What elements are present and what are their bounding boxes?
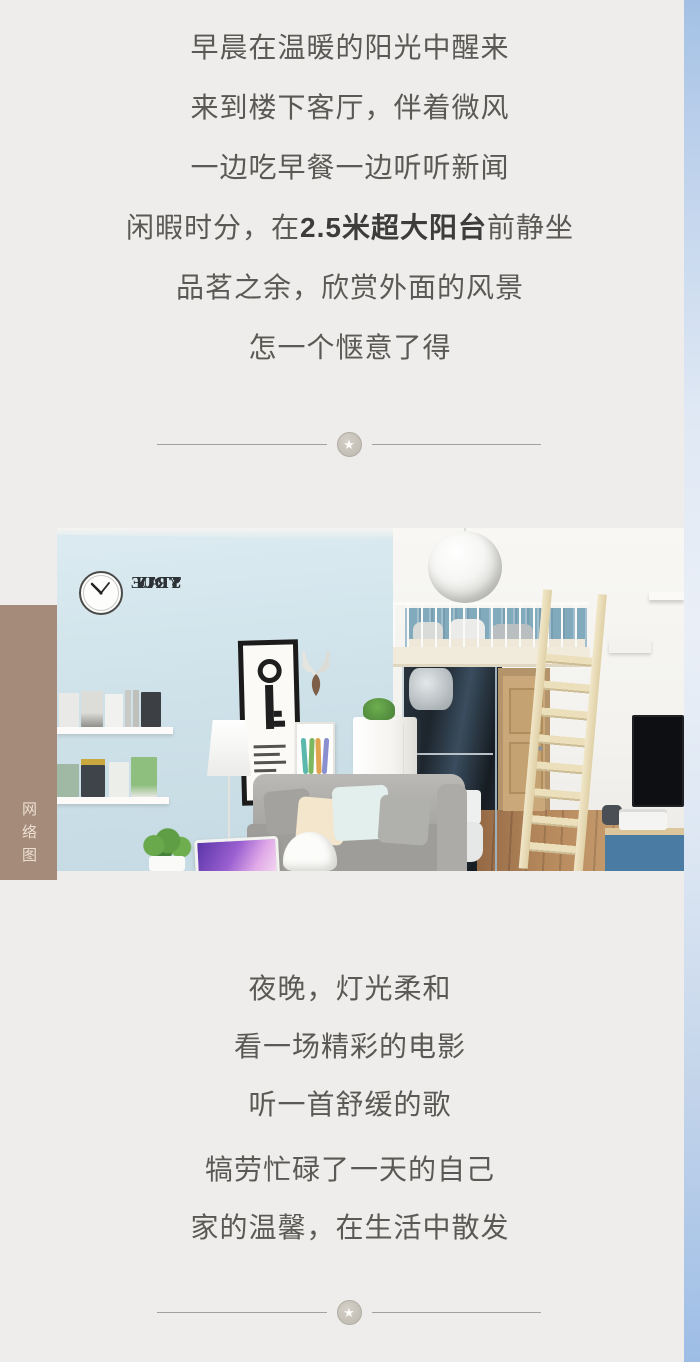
wall-shelf [609, 640, 651, 653]
magazine [81, 691, 103, 727]
magazine [59, 693, 79, 727]
outro-line: 家的温馨，在生活中散发 [0, 1197, 700, 1255]
wall-shelf [649, 592, 684, 600]
picture-ledge [57, 797, 169, 804]
poster-text-row [254, 745, 286, 749]
key-icon [274, 721, 285, 727]
intro-line4-post: 前静坐 [487, 206, 574, 246]
divider-line [157, 1312, 327, 1313]
source-tag-bar: 网络图 [0, 605, 57, 880]
source-tag-label: 网络图 [18, 801, 39, 870]
intro-line: 一边吃早餐一边听听新闻 [0, 136, 700, 196]
poster-text-row [254, 761, 286, 765]
floor-lamp-shade [207, 720, 251, 776]
intro-line: 早晨在温暖的阳光中醒来 [0, 16, 700, 76]
balcony-highlight: 2.5米超大阳台 [300, 206, 487, 246]
magazine [131, 757, 157, 797]
page-edge-strip [684, 0, 700, 1362]
laptop [194, 836, 280, 871]
outro-line: 看一场精彩的电影 [0, 1016, 700, 1074]
feather-stroke [301, 738, 308, 774]
poster-text-row [254, 769, 276, 773]
plant-pot [149, 856, 185, 871]
magazine [141, 692, 161, 727]
intro-line: 怎一个惬意了得 [0, 316, 700, 376]
intro-line: 来到楼下客厅，伴着微风 [0, 76, 700, 136]
article-page: 早晨在温暖的阳光中醒来 来到楼下客厅，伴着微风 一边吃早餐一边听听新闻 闲暇时分… [0, 0, 700, 1362]
glass-edge [495, 662, 497, 871]
book-spine [133, 690, 139, 727]
book-spine [125, 690, 131, 727]
pendant-ball-lamp [428, 531, 502, 603]
divider-line [372, 444, 542, 445]
antler-decor [293, 644, 339, 704]
star-medallion-icon: ★ [337, 1300, 362, 1325]
magazine [109, 762, 129, 797]
sofa-armrest [437, 784, 467, 871]
blue-cabinet [605, 828, 684, 871]
decal-line: YOU [140, 572, 181, 594]
magazine [81, 759, 105, 797]
intro-stanza: 早晨在温暖的阳光中醒来 来到楼下客厅，伴着微风 一边吃早餐一边听听新闻 闲暇时分… [0, 16, 700, 376]
star-medallion-icon: ★ [337, 432, 362, 457]
poster-text-row [254, 753, 280, 757]
key-icon [257, 659, 282, 684]
divider-line [157, 444, 327, 445]
section-divider-top: ★ [157, 432, 541, 456]
printer [619, 809, 667, 830]
outro-stanza: 夜晚，灯光柔和 看一场精彩的电影 听一首舒缓的歌 犒劳忙碌了一天的自己 家的温馨… [0, 958, 700, 1255]
feather-stroke [322, 738, 329, 774]
intro-line-highlight: 闲暇时分，在2.5米超大阳台前静坐 [0, 196, 700, 256]
magazine [57, 764, 79, 797]
plant-on-wardrobe [363, 698, 395, 720]
feather-stroke [308, 738, 314, 774]
section-divider-bottom: ★ [157, 1300, 541, 1324]
apartment-photo: STAY TRUE STAY YOU [57, 528, 684, 871]
water-heater [409, 668, 453, 710]
key-icon [274, 711, 282, 717]
divider-line [372, 1312, 542, 1313]
wall-tv [632, 715, 684, 807]
magazine [105, 694, 123, 727]
outro-line: 犒劳忙碌了一天的自己 [0, 1139, 700, 1197]
outro-line: 听一首舒缓的歌 [0, 1074, 700, 1132]
wall-clock [78, 570, 124, 616]
key-icon [265, 685, 274, 729]
outro-line: 夜晚，灯光柔和 [0, 958, 700, 1016]
picture-ledge [57, 727, 173, 734]
towel-bar [417, 753, 493, 755]
intro-line4-pre: 闲暇时分，在 [126, 206, 300, 246]
intro-line: 品茗之余，欣赏外面的风景 [0, 256, 700, 316]
feather-stroke [315, 738, 321, 774]
sofa-pillow [377, 794, 430, 845]
